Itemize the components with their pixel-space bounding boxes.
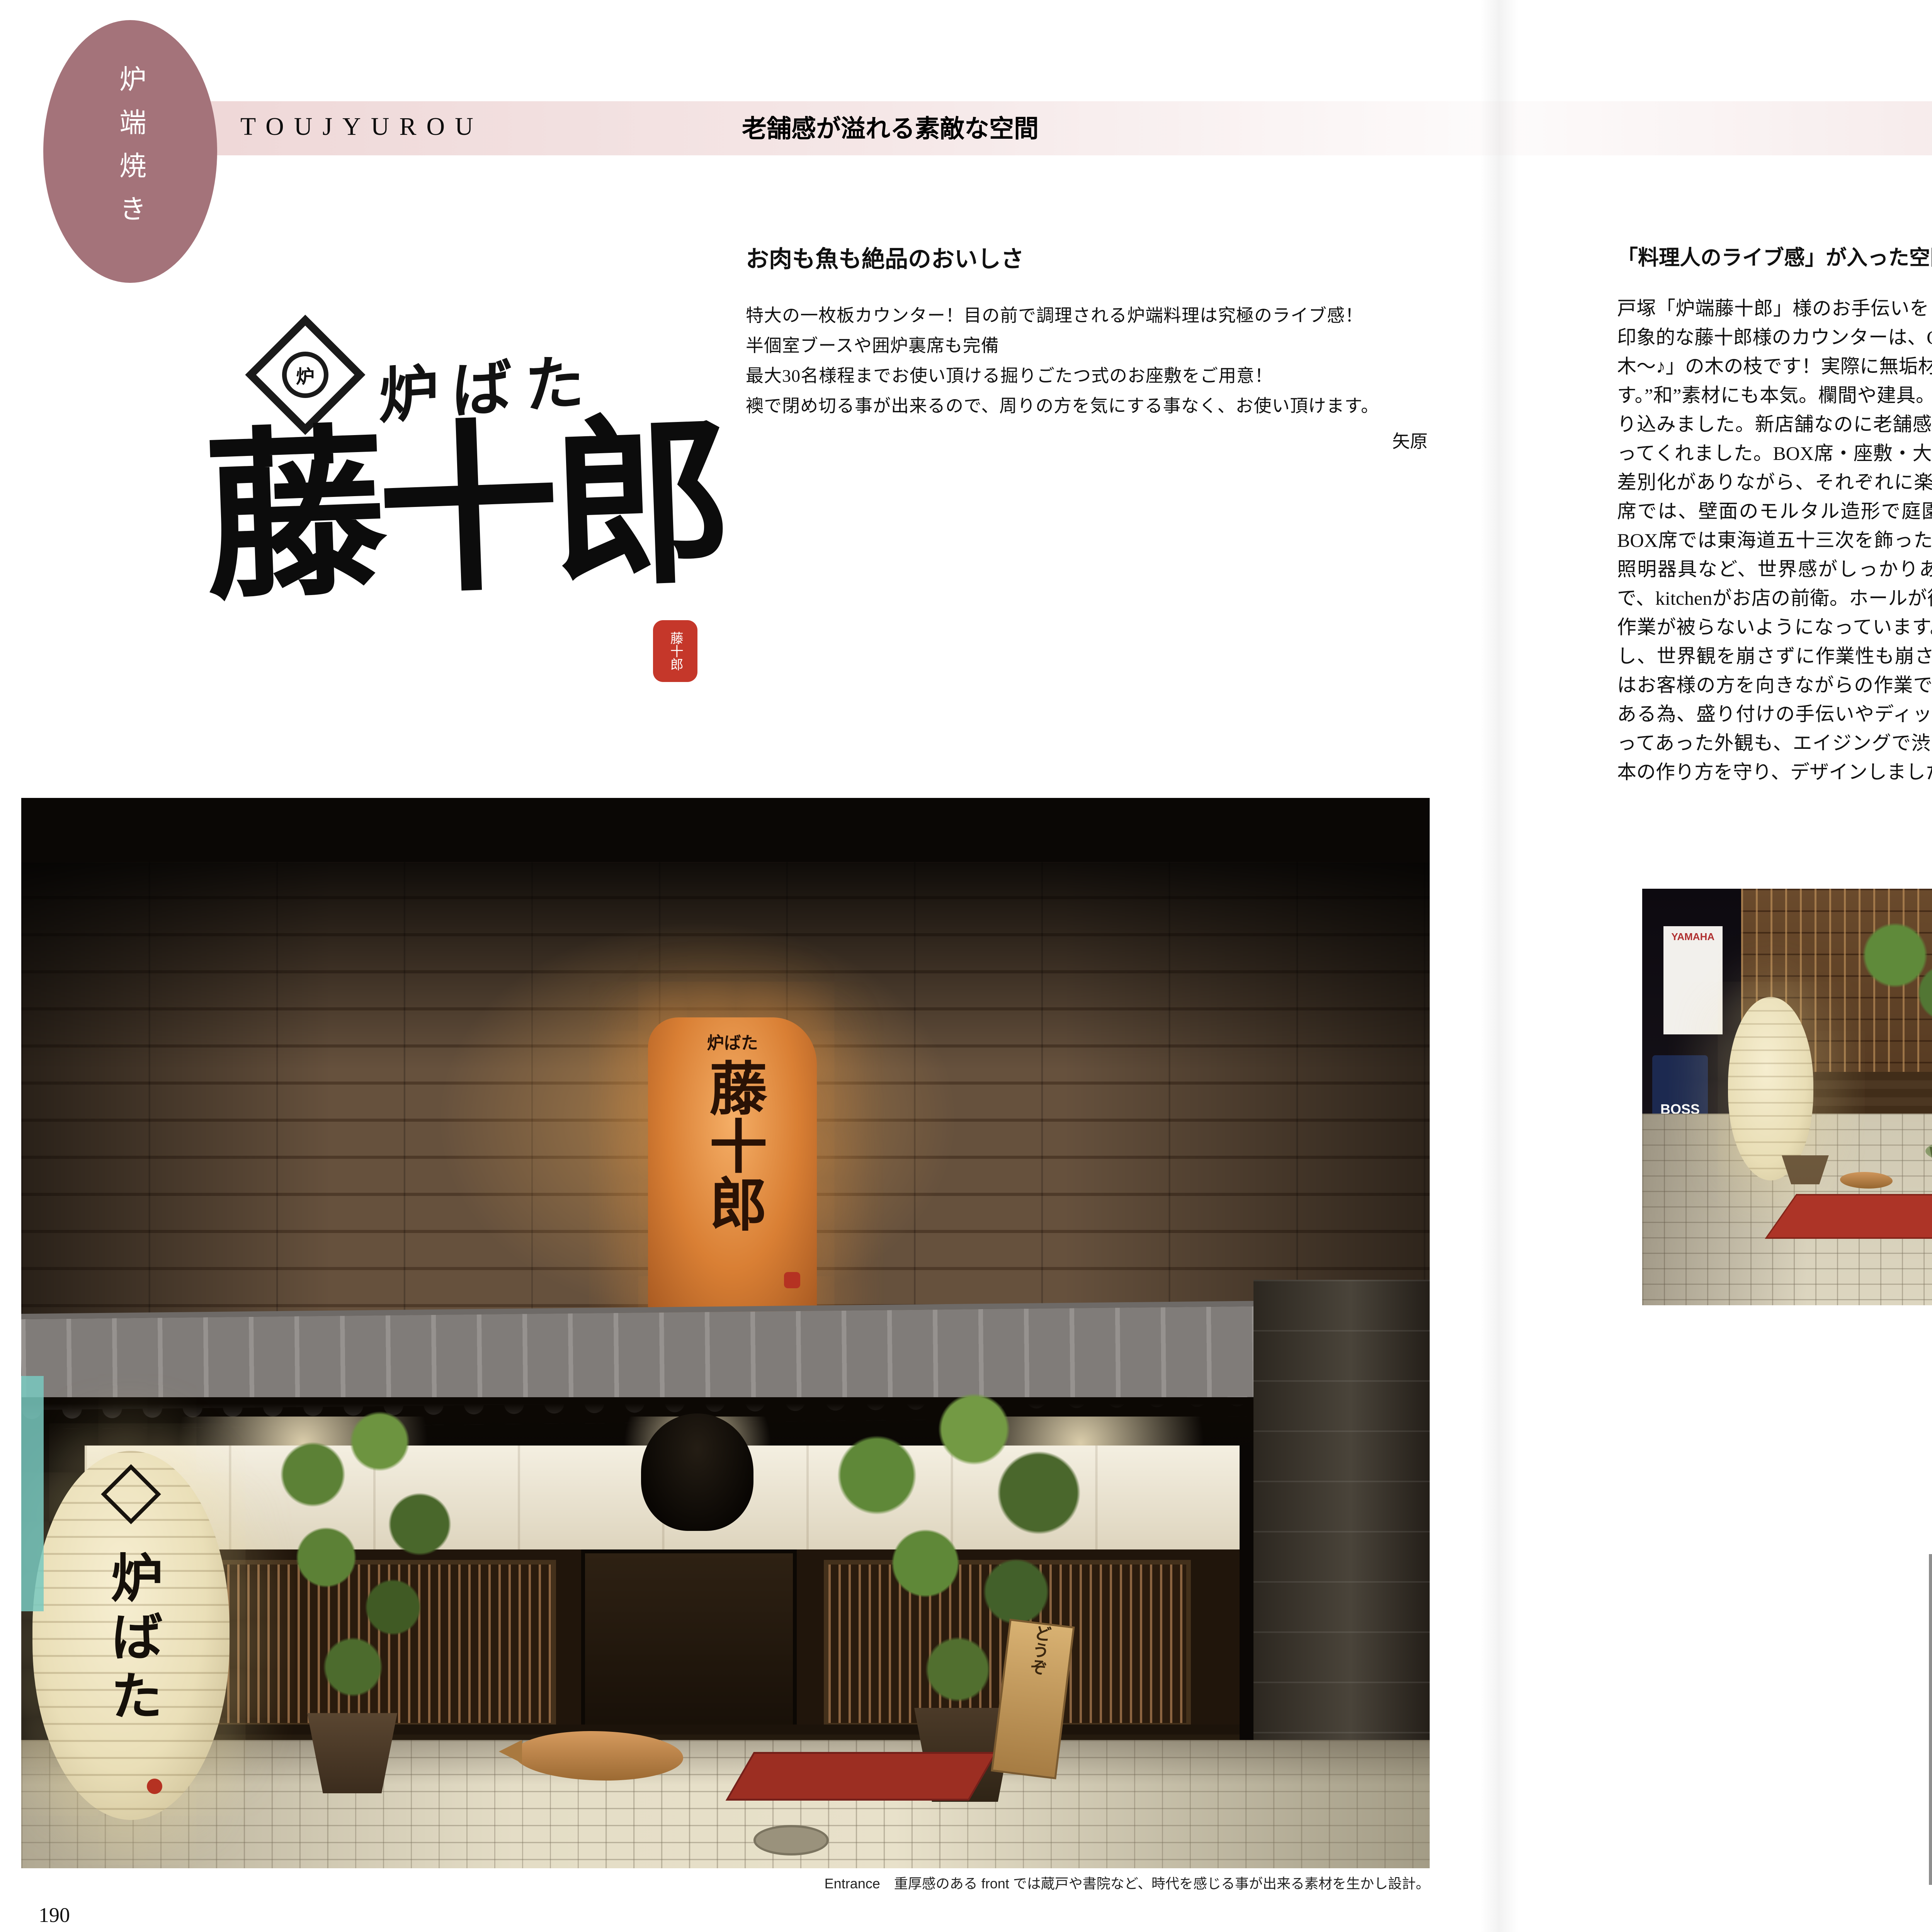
plan-wall <box>1929 1554 1932 1884</box>
right-article-body: 戸塚「炉端藤十郎」様のお手伝いをさせて頂きました。超巨大！6mの無垢板が印象的な… <box>1617 294 1932 787</box>
yamaha-sign: YAMAHA <box>1663 926 1723 1034</box>
photo2-tree-foliage <box>1827 889 1932 1130</box>
red-seal-icon: 藤十郎 <box>653 620 697 682</box>
left-article-heading: お肉も魚も絶品のおいしさ <box>746 240 1428 274</box>
category-badge: 炉端焼き <box>43 20 217 283</box>
bamboo-plant-left <box>233 1408 500 1740</box>
storefront-photo-caption: Entrance 重厚感のある front では蔵戸や書院など、時代を感じる事が… <box>21 1872 1430 1893</box>
restaurant-logo: 炉 炉ばた 藤十郎 藤十郎 <box>216 267 757 699</box>
article-line: 半個室ブースや囲炉裏席も完備 <box>746 337 1428 355</box>
photo2-lantern <box>1728 997 1814 1180</box>
floor-plan: 厨房 カウンター カウンター 掘りごたつ座敷席 半個室席 囲炉裏席 WC WC <box>1913 1337 1932 1909</box>
red-entrance-mat <box>725 1752 997 1801</box>
lantern-crest-icon <box>101 1464 162 1524</box>
seal-text: 藤十郎 <box>668 631 682 671</box>
article-line: 最大30名様程までお使い頂ける掘りごたつ式のお座敷をご用意！ <box>746 367 1428 385</box>
sign-name-text: 藤十郎 <box>702 1058 763 1232</box>
manhole-cover <box>753 1825 828 1855</box>
storefront-photo: 炉ばた 藤十郎 どうぞ 炉ばた <box>21 798 1430 1868</box>
sign-seal-icon <box>784 1272 800 1288</box>
tree-plant-right <box>796 1387 1120 1740</box>
right-article-heading: 「料理人のライブ感」が入った空間設計 <box>1617 240 1932 271</box>
entrance-photo-caption: 重厚感のあるフロントに合った植栽 <box>1642 1312 1932 1332</box>
logo-name: 藤十郎 <box>202 412 727 612</box>
page-title: 老舗感が溢れる素敵な空間 <box>742 109 1039 145</box>
left-article: お肉も魚も絶品のおいしさ 特大の一枚板カウンター！目の前で調理される炉端料理は究… <box>746 240 1428 453</box>
plank-text: どうぞ <box>1012 1623 1054 1775</box>
entrance-photo: YAMAHA BOSS どうぞ <box>1642 889 1932 1305</box>
left-article-signature: 矢原 <box>746 427 1428 453</box>
category-badge-text: 炉端焼き <box>111 65 150 238</box>
plan-wall <box>1929 1554 1932 1569</box>
street-light-sliver <box>21 1376 44 1611</box>
page-number-left: 190 <box>39 1903 70 1927</box>
paper-lantern: 炉ばた <box>32 1451 230 1820</box>
photo-hanging-lamp <box>641 1413 754 1531</box>
page-gutter <box>1480 0 1519 1932</box>
left-article-lines: 特大の一枚板カウンター！目の前で調理される炉端料理は究極のライブ感！半個室ブース… <box>746 307 1428 415</box>
photo-wood-sign: 炉ばた 藤十郎 <box>648 1017 817 1312</box>
crest-kanji: 炉 <box>282 352 328 398</box>
header-band-right <box>1499 101 1932 155</box>
magazine-spread: 炉端焼き TOUJYUROU 老舗感が溢れる素敵な空間 設計・デザイン 株式会社… <box>0 0 1932 1932</box>
shop-name-roman: TOUJYUROU <box>240 112 483 141</box>
right-article-signature: 株式会社HACOLABO／平舘 祐希 <box>1617 789 1932 817</box>
right-article: 「料理人のライブ感」が入った空間設計 戸塚「炉端藤十郎」様のお手伝いをさせて頂き… <box>1617 240 1932 817</box>
yamaha-sign-text: YAMAHA <box>1671 931 1714 1034</box>
lantern-seal-icon <box>147 1779 162 1794</box>
sign-script-text: 炉ばた <box>648 1029 817 1054</box>
article-line: 特大の一枚板カウンター！目の前で調理される炉端料理は究極のライブ感！ <box>746 307 1428 325</box>
tiled-pavement <box>21 1740 1430 1868</box>
photo-tile-roof <box>21 1299 1430 1410</box>
lantern-text: 炉ばた <box>102 1551 160 1728</box>
article-line: 襖で閉め切る事が出来るので、周りの方を気にする事なく、お使い頂けます。 <box>746 397 1428 415</box>
